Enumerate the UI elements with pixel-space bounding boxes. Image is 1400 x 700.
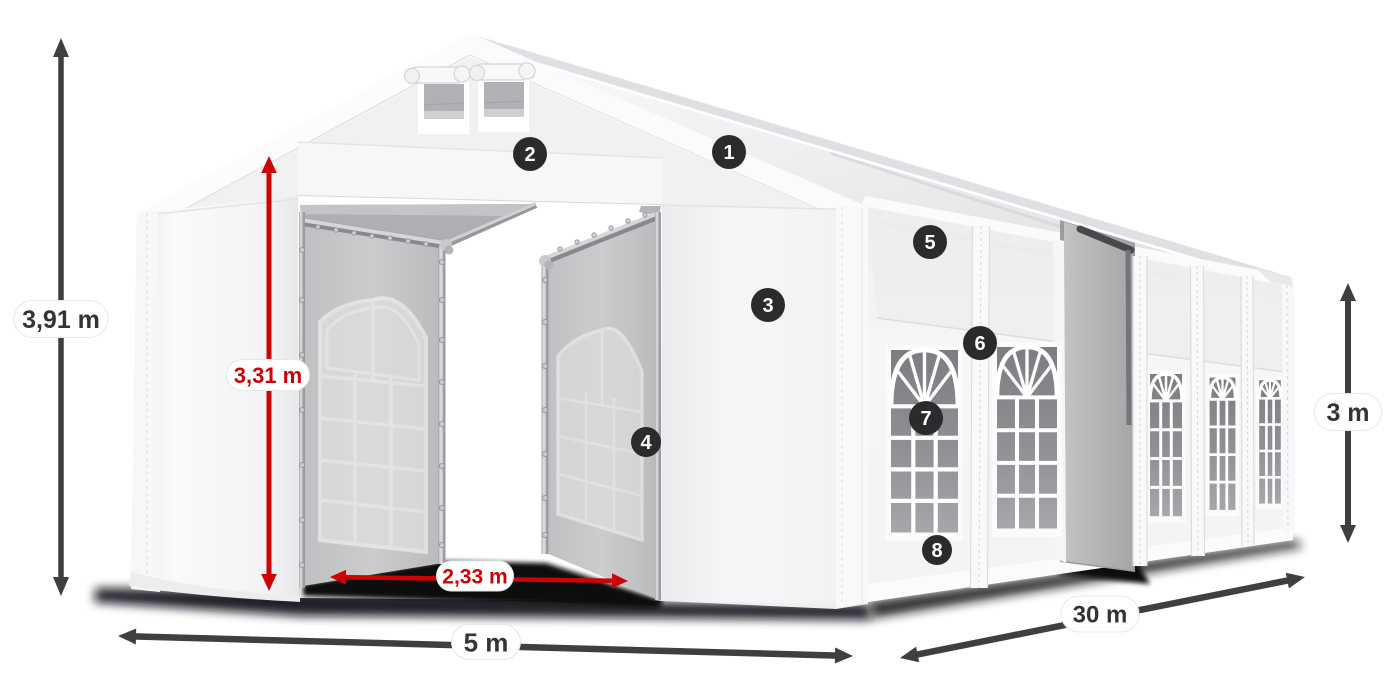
svg-text:3,91 m: 3,91 m	[22, 306, 100, 334]
svg-text:7: 7	[920, 408, 931, 430]
svg-text:5: 5	[924, 232, 935, 254]
svg-text:30 m: 30 m	[1073, 602, 1128, 629]
svg-text:2,33 m: 2,33 m	[442, 566, 507, 589]
svg-text:2: 2	[524, 144, 535, 166]
svg-text:1: 1	[723, 142, 734, 164]
svg-text:5 m: 5 m	[464, 627, 509, 657]
svg-text:6: 6	[974, 333, 985, 355]
svg-text:3,31 m: 3,31 m	[234, 363, 303, 388]
svg-text:4: 4	[640, 432, 652, 454]
svg-text:3: 3	[762, 295, 773, 317]
svg-text:8: 8	[931, 540, 942, 562]
svg-text:3 m: 3 m	[1326, 399, 1369, 427]
